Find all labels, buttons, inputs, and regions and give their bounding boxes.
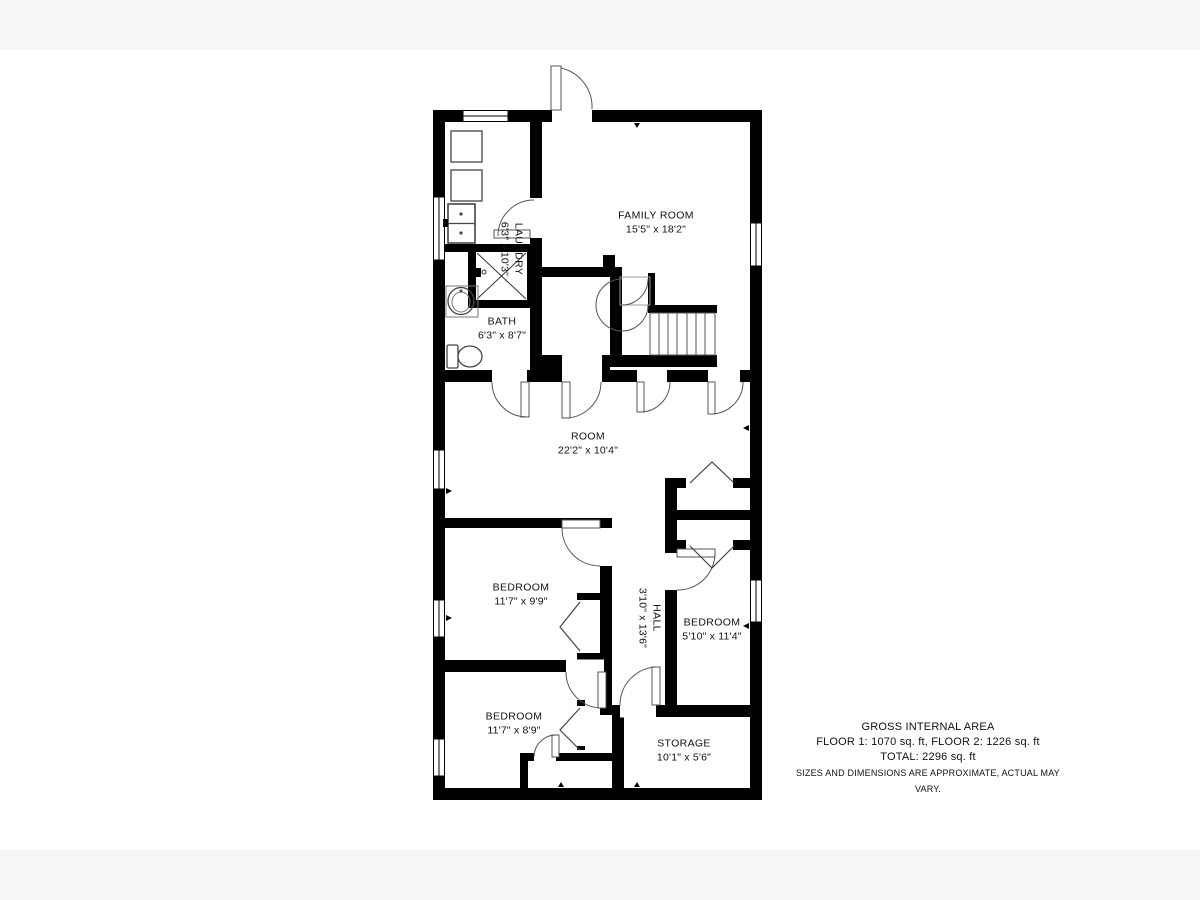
entry-door-icon	[551, 66, 592, 110]
room-label-bath: BATH 6'3" x 8'7"	[478, 316, 526, 343]
room-name: BEDROOM	[493, 582, 550, 596]
window	[463, 111, 508, 122]
window	[751, 580, 762, 622]
area-summary-total: TOTAL: 2296 sq. ft	[792, 750, 1064, 765]
room-name: BATH	[478, 316, 526, 330]
floor-plan-page: LAUNDRY 6'3" x 10'3" FAMILY ROOM 15'5" x…	[0, 0, 1200, 900]
room-label-bedroom-1: BEDROOM 11'7" x 9'9"	[493, 582, 550, 609]
area-summary-disclaimer: SIZES AND DIMENSIONS ARE APPROXIMATE, AC…	[792, 765, 1064, 797]
laundry-sink-icon	[443, 204, 475, 243]
bedroom3-door-icon	[677, 549, 715, 590]
room-name: STORAGE	[657, 738, 711, 752]
room-label-bedroom-3: BEDROOM 11'7" x 8'9"	[486, 711, 543, 738]
toilet-icon	[447, 345, 482, 368]
room-dims: 10'1" x 5'6"	[657, 751, 711, 765]
room-label-room: ROOM 22'2" x 10'4"	[558, 431, 618, 458]
room-name: ROOM	[558, 431, 618, 445]
window	[434, 600, 445, 637]
room-name: LAUNDRY	[511, 222, 525, 276]
room-name: HALL	[649, 588, 663, 648]
window	[434, 450, 445, 489]
bath-door-icon	[492, 382, 529, 417]
storage-door-icon	[620, 667, 660, 705]
room-dims: 3'10" x 13'6"	[636, 588, 650, 648]
stairs-icon	[650, 313, 715, 355]
area-summary-floors: FLOOR 1: 1070 sq. ft, FLOOR 2: 1226 sq. …	[792, 735, 1064, 750]
doors	[492, 66, 743, 757]
washer-icon	[451, 131, 482, 162]
window	[751, 223, 762, 266]
understair-door-icon	[562, 382, 601, 418]
room-dims: 6'3" x 8'7"	[478, 329, 526, 343]
bedroom2-door-icon	[566, 672, 606, 708]
room-dims: 11'7" x 8'9"	[486, 724, 543, 738]
room-label-storage: STORAGE 10'1" x 5'6"	[657, 738, 711, 765]
room-dims: 22'2" x 10'4"	[558, 444, 618, 458]
room-dims: 15'5" x 18'2"	[618, 223, 694, 237]
family-alcove-door-icon	[708, 382, 743, 414]
stair-door-icon	[596, 277, 650, 331]
dryer-icon	[451, 170, 482, 201]
bedroom1-door-icon	[562, 520, 600, 566]
room-name: FAMILY ROOM	[618, 210, 694, 224]
area-summary-title: GROSS INTERNAL AREA	[792, 720, 1064, 735]
room-name: BEDROOM	[486, 711, 543, 725]
room-dims: 6'3" x 10'3"	[498, 222, 512, 276]
window	[434, 197, 445, 260]
room-label-bedroom-2: BEDROOM 5'10" x 11'4"	[682, 617, 741, 644]
room-label-family-room: FAMILY ROOM 15'5" x 18'2"	[618, 210, 694, 237]
room-label-laundry: LAUNDRY 6'3" x 10'3"	[498, 222, 525, 276]
window	[434, 739, 445, 776]
room-label-hall: HALL 3'10" x 13'6"	[636, 588, 663, 648]
room-dims: 11'7" x 9'9"	[493, 595, 550, 609]
area-summary: GROSS INTERNAL AREA FLOOR 1: 1070 sq. ft…	[792, 720, 1064, 797]
room-door-icon	[637, 382, 670, 412]
room-name: BEDROOM	[682, 617, 741, 631]
room-dims: 5'10" x 11'4"	[682, 630, 741, 644]
